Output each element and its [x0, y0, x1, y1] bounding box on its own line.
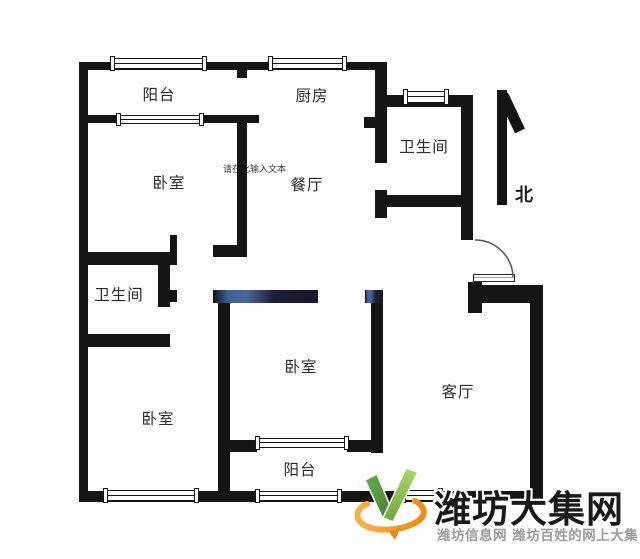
wall: [237, 115, 247, 257]
north-label: 北: [515, 181, 533, 207]
window: [403, 490, 441, 501]
wall: [347, 440, 375, 452]
window: [112, 58, 205, 69]
wall: [79, 252, 170, 265]
wall: [230, 440, 257, 452]
floor-plan: 北 请在此输入文本 阳台厨房卫生间卧室餐厅卫生间卧室卧室客厅阳台: [0, 0, 640, 559]
window-end-cap: [403, 89, 408, 105]
wall: [461, 95, 473, 240]
wall: [375, 195, 473, 207]
room-label-bathroom-left: 卫生间: [94, 283, 144, 305]
window: [405, 91, 447, 103]
room-label-bathroom-top: 卫生间: [399, 135, 449, 157]
window-end-cap: [401, 488, 406, 503]
room-label-bedroom-middle: 卧室: [284, 355, 317, 377]
window-end-cap: [438, 488, 443, 503]
room-label-bedroom-bottom-left: 卧室: [141, 407, 174, 429]
wall: [213, 245, 247, 257]
wall: [170, 235, 177, 265]
window: [118, 115, 202, 124]
window-end-cap: [116, 113, 121, 126]
room-label-bedroom-top-left: 卧室: [152, 171, 185, 193]
wall: [371, 303, 383, 453]
entry-door-leaf: [473, 274, 515, 282]
wall: [158, 265, 170, 307]
wall: [79, 334, 170, 347]
window-end-cap: [444, 89, 449, 105]
room-label-kitchen: 厨房: [295, 84, 328, 106]
wall: [213, 290, 318, 303]
room-label-living-room: 客厅: [441, 380, 474, 402]
window-end-cap: [103, 488, 108, 503]
window: [257, 438, 347, 448]
window-end-cap: [202, 56, 207, 71]
window: [257, 491, 340, 501]
window-end-cap: [110, 56, 115, 71]
wall: [468, 282, 482, 313]
window-end-cap: [255, 489, 260, 503]
wall: [530, 285, 543, 502]
window-end-cap: [344, 436, 349, 450]
wall: [79, 62, 88, 502]
window: [105, 490, 197, 501]
wall: [365, 290, 383, 303]
window-end-cap: [337, 489, 342, 503]
wall: [375, 62, 387, 163]
room-label-balcony-bottom: 阳台: [283, 458, 316, 480]
room-label-balcony-top: 阳台: [142, 83, 175, 105]
wall: [170, 290, 177, 302]
wall: [364, 117, 375, 128]
wall: [218, 303, 230, 491]
window-end-cap: [268, 56, 273, 71]
window-end-cap: [199, 113, 204, 126]
room-label-dining-room: 餐厅: [290, 173, 323, 195]
window: [270, 58, 345, 69]
placeholder-watermark-text: 请在此输入文本: [223, 162, 286, 175]
wall: [237, 70, 247, 78]
wall: [375, 190, 387, 218]
window-end-cap: [255, 436, 260, 450]
window-end-cap: [342, 56, 347, 71]
entry-door-arc: [475, 240, 513, 277]
window-end-cap: [194, 488, 199, 503]
